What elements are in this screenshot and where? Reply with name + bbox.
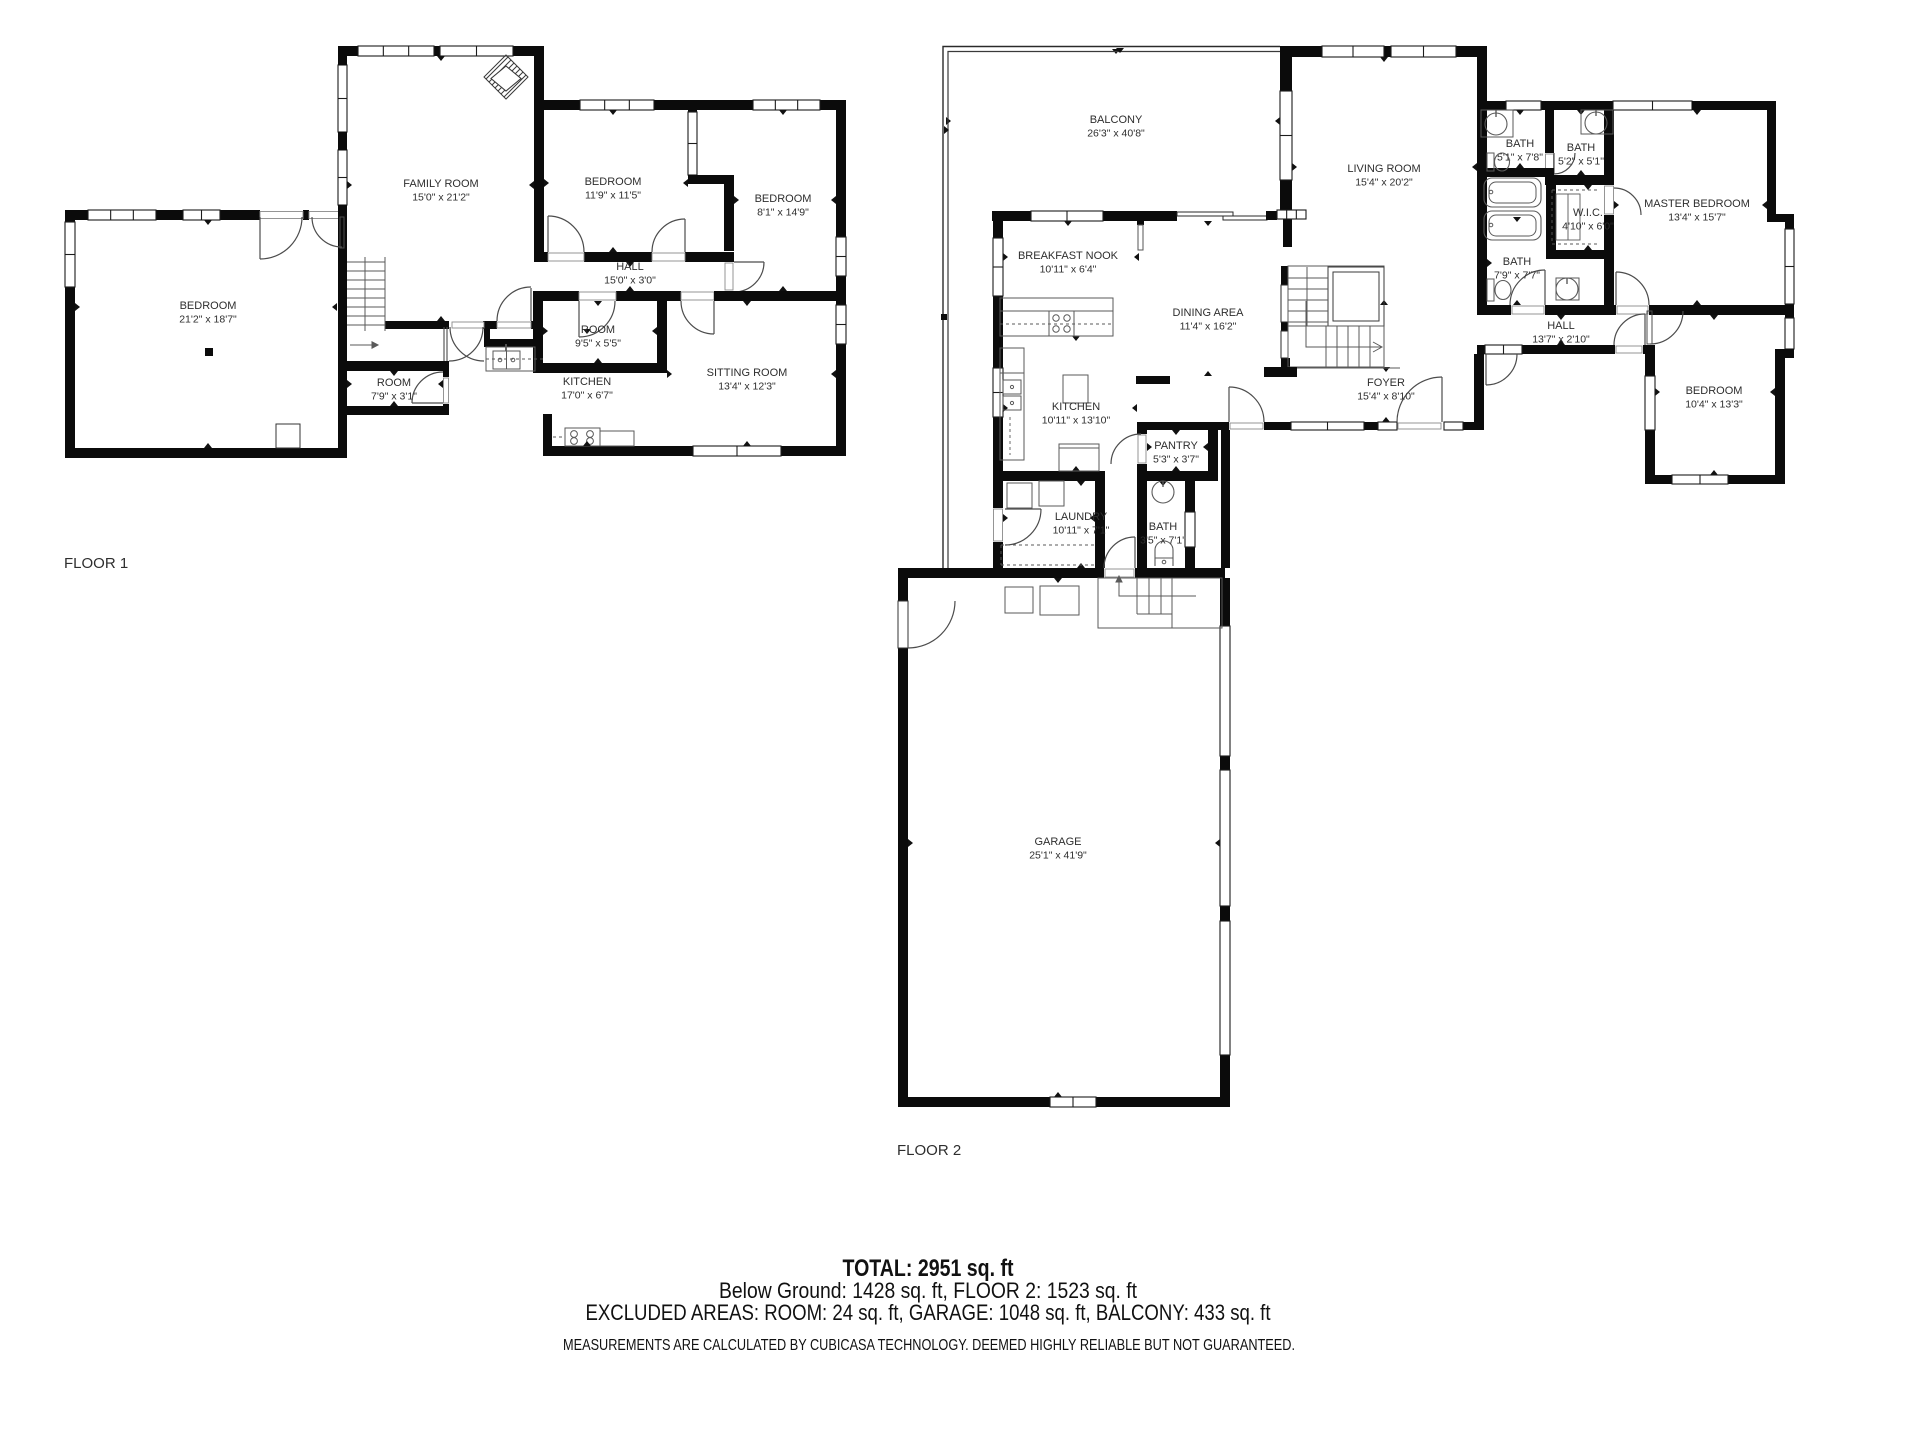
svg-text:BEDROOM: BEDROOM [585, 176, 642, 188]
svg-text:15'0" x 3'0": 15'0" x 3'0" [604, 275, 656, 287]
svg-text:15'4" x 20'2": 15'4" x 20'2" [1355, 177, 1413, 189]
svg-text:FAMILY ROOM: FAMILY ROOM [403, 178, 478, 190]
svg-text:10'11" x 13'10": 10'11" x 13'10" [1042, 415, 1111, 427]
svg-text:BATH: BATH [1506, 138, 1535, 150]
svg-text:BREAKFAST NOOK: BREAKFAST NOOK [1018, 250, 1119, 262]
svg-text:HALL: HALL [1547, 320, 1575, 332]
svg-text:LIVING ROOM: LIVING ROOM [1347, 163, 1420, 175]
svg-text:BATH: BATH [1503, 256, 1532, 268]
svg-text:10'4" x 13'3": 10'4" x 13'3" [1685, 399, 1743, 411]
svg-text:9'5" x 5'5": 9'5" x 5'5" [575, 338, 621, 350]
svg-text:26'3" x 40'8": 26'3" x 40'8" [1087, 128, 1145, 140]
svg-text:10'11" x 6'4": 10'11" x 6'4" [1040, 264, 1097, 276]
svg-text:8'1" x 14'9": 8'1" x 14'9" [757, 207, 809, 219]
svg-text:GARAGE: GARAGE [1034, 836, 1081, 848]
svg-text:LAUNDRY: LAUNDRY [1055, 511, 1108, 523]
svg-text:BATH: BATH [1149, 521, 1178, 533]
svg-text:7'9" x 7'7": 7'9" x 7'7" [1494, 270, 1540, 282]
svg-text:13'7" x 2'10": 13'7" x 2'10" [1532, 334, 1590, 346]
svg-text:17'0" x 6'7": 17'0" x 6'7" [561, 390, 613, 402]
svg-text:BEDROOM: BEDROOM [1686, 385, 1743, 397]
svg-text:BEDROOM: BEDROOM [755, 193, 812, 205]
svg-text:MASTER BEDROOM: MASTER BEDROOM [1644, 198, 1750, 210]
svg-text:ROOM: ROOM [581, 324, 615, 336]
svg-text:BATH: BATH [1567, 142, 1596, 154]
svg-text:SITTING ROOM: SITTING ROOM [707, 367, 788, 379]
svg-text:4'10" x 6'0": 4'10" x 6'0" [1562, 221, 1614, 233]
svg-text:KITCHEN: KITCHEN [1052, 401, 1100, 413]
svg-text:3'5" x 7'1": 3'5" x 7'1" [1140, 535, 1186, 547]
svg-text:5'3" x 3'7": 5'3" x 3'7" [1153, 454, 1199, 466]
svg-text:5'2" x 5'1": 5'2" x 5'1" [1558, 156, 1604, 168]
svg-text:13'4" x 15'7": 13'4" x 15'7" [1668, 212, 1726, 224]
svg-text:FLOOR 2: FLOOR 2 [897, 1142, 961, 1159]
svg-text:25'1" x 41'9": 25'1" x 41'9" [1029, 850, 1087, 862]
svg-text:EXCLUDED AREAS: ROOM: 24 sq. f: EXCLUDED AREAS: ROOM: 24 sq. ft, GARAGE:… [586, 1300, 1271, 1325]
svg-text:PANTRY: PANTRY [1154, 440, 1198, 452]
svg-text:FLOOR 1: FLOOR 1 [64, 555, 128, 572]
svg-text:DINING AREA: DINING AREA [1173, 307, 1245, 319]
svg-text:15'4" x 8'10": 15'4" x 8'10" [1357, 391, 1415, 403]
svg-text:HALL: HALL [616, 261, 644, 273]
svg-text:11'9" x 11'5": 11'9" x 11'5" [585, 190, 641, 202]
svg-text:7'9" x 3'1": 7'9" x 3'1" [371, 391, 417, 403]
svg-text:W.I.C.: W.I.C. [1573, 207, 1603, 219]
svg-text:13'4" x 12'3": 13'4" x 12'3" [718, 381, 776, 393]
svg-text:KITCHEN: KITCHEN [563, 376, 611, 388]
svg-text:MEASUREMENTS ARE CALCULATED BY: MEASUREMENTS ARE CALCULATED BY CUBICASA … [563, 1337, 1295, 1354]
svg-text:11'4" x 16'2": 11'4" x 16'2" [1180, 321, 1237, 333]
svg-text:10'11" x 7'1": 10'11" x 7'1" [1053, 525, 1110, 537]
svg-text:BALCONY: BALCONY [1090, 114, 1143, 126]
svg-text:ROOM: ROOM [377, 377, 411, 389]
svg-text:21'2" x 18'7": 21'2" x 18'7" [179, 314, 237, 326]
svg-text:15'0" x 21'2": 15'0" x 21'2" [412, 192, 470, 204]
svg-text:FOYER: FOYER [1367, 377, 1405, 389]
svg-text:BEDROOM: BEDROOM [180, 300, 237, 312]
